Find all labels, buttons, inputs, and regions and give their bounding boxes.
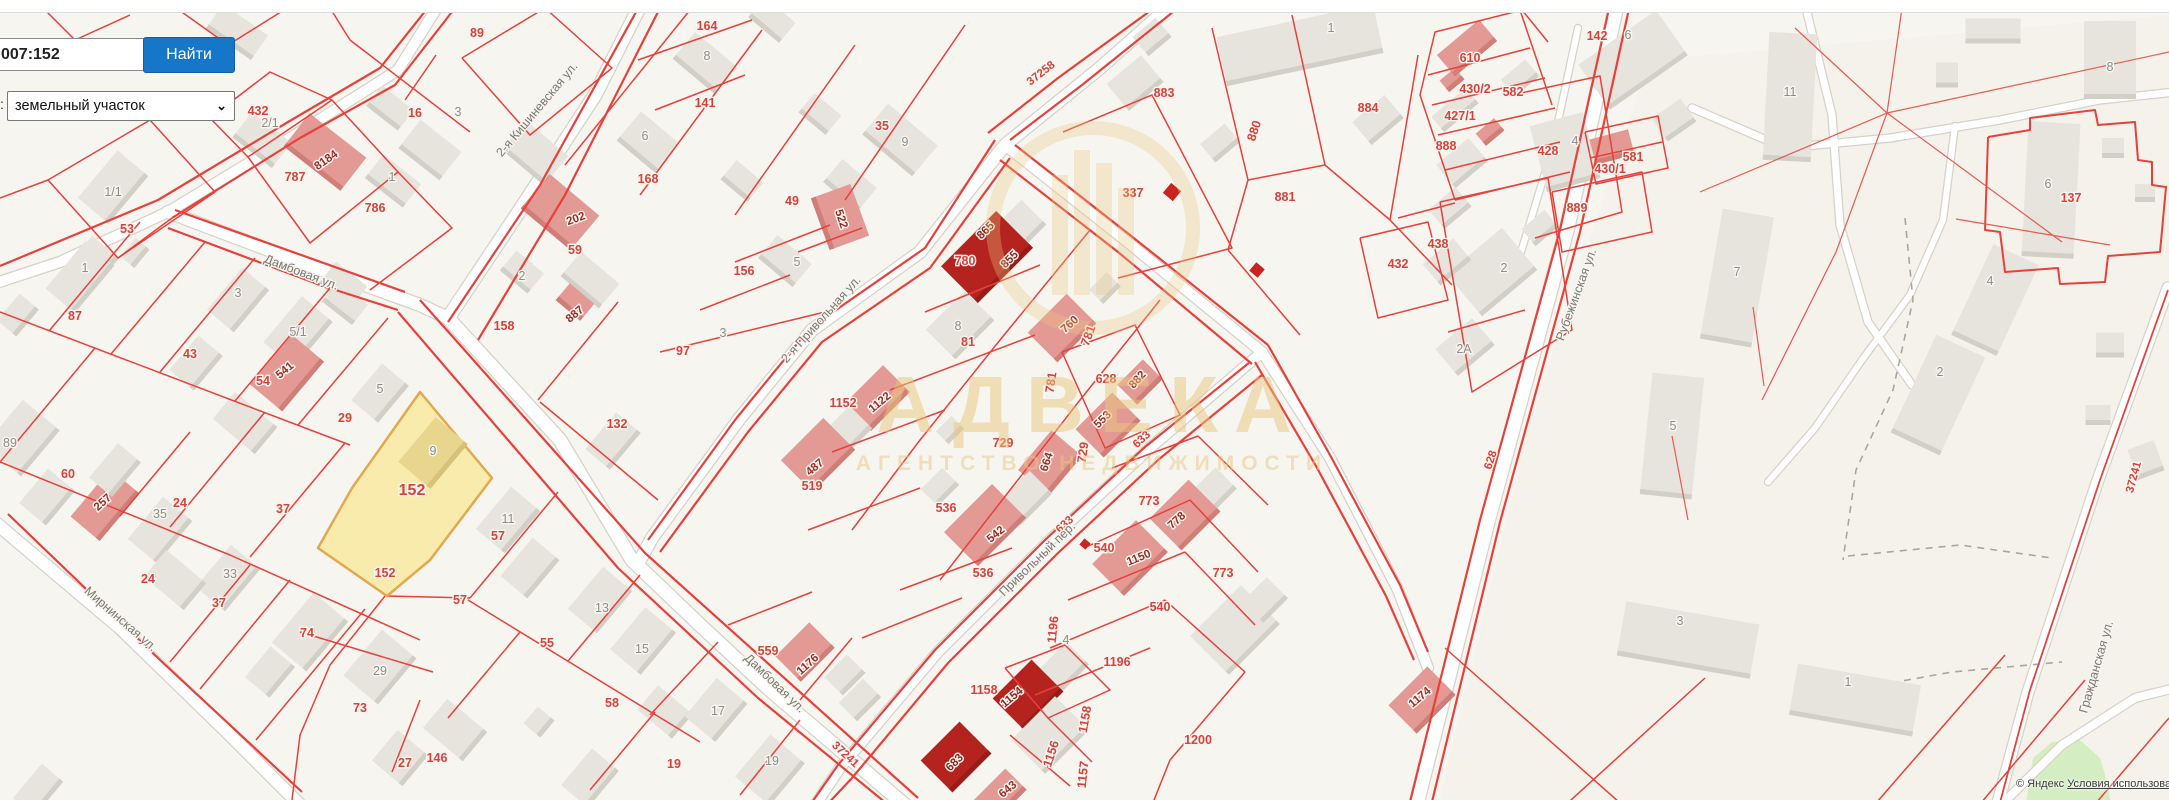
parcel-label: 540 [1094, 541, 1115, 555]
parcel-label: 430/2 [1459, 82, 1490, 96]
parcel-label: 773 [1139, 494, 1160, 508]
parcel-label: 6 [2045, 177, 2052, 191]
parcel-label: 11 [1784, 85, 1797, 99]
parcel-label: 19 [667, 757, 681, 771]
building [2135, 184, 2155, 202]
parcel-label: 540 [1150, 600, 1171, 614]
building [799, 93, 842, 135]
parcel-boundary [728, 592, 812, 625]
building [673, 32, 738, 94]
building [2086, 405, 2111, 425]
parcel-label: 3 [455, 105, 462, 119]
building [862, 104, 938, 176]
parcel-label: 164 [697, 19, 718, 33]
parcel-label: 59 [568, 243, 582, 257]
building [1966, 19, 2021, 44]
parcel-boundary [700, 275, 790, 310]
parcel-boundary [175, 210, 405, 292]
parcel-label: 29 [373, 664, 387, 678]
parcel-label: 1157 [1075, 760, 1092, 788]
parcel-label: 137 [2061, 191, 2082, 205]
watermark-title: АДВЕКА [876, 360, 1307, 449]
parcel-label: 1/1 [104, 185, 121, 199]
parcel-label: 2 [519, 269, 526, 283]
road-number-label: 37258 [1025, 59, 1058, 89]
parcel-label: 3 [720, 326, 727, 340]
parcel-label: 883 [1154, 86, 1175, 100]
parcel-label: 156 [734, 264, 755, 278]
building [1936, 63, 1958, 88]
parcel-label: 27 [398, 756, 412, 770]
parcel-label: 9 [902, 135, 909, 149]
parcel-label: 5/1 [289, 325, 306, 339]
map-attribution: © Яндекс Условия использования [2016, 778, 2169, 790]
parcel-boundary [862, 598, 962, 638]
parcel-label: 57 [453, 593, 467, 607]
parcel-label: 37 [276, 502, 290, 516]
parcel-label: 536 [936, 501, 957, 515]
cadastral-number-input[interactable] [0, 38, 146, 71]
building [1200, 124, 1240, 163]
parcel-label: 1158 [1076, 705, 1095, 734]
parcel-label: 168 [638, 172, 659, 186]
parcel-label: 60 [61, 467, 75, 481]
parcel-label: 1 [1845, 675, 1852, 689]
building [637, 685, 692, 738]
parcel-label: 519 [802, 479, 823, 493]
page-top-strip [0, 0, 2169, 13]
parcel-label: 2/1 [261, 116, 278, 130]
map-canvas[interactable]: 4322/178781847861163891/1531874335/15415… [0, 0, 2169, 800]
parcel-label: 132 [607, 417, 628, 431]
parcel-label: 13 [595, 601, 609, 615]
parcel-label: 430/1 [1594, 162, 1625, 176]
marked-object [1079, 538, 1090, 549]
parcel-label: 5 [377, 382, 384, 396]
parcel-label: 884 [1358, 101, 1379, 115]
parcel-label: 2А [1456, 342, 1472, 356]
parcel-label: 17 [711, 704, 725, 718]
parcel-label: 536 [973, 566, 994, 580]
building [561, 748, 619, 800]
parcel-label: 152 [399, 482, 426, 499]
parcel-label: 142 [1587, 29, 1608, 43]
parcel-label: 4 [1063, 633, 1070, 647]
parcel-boundary [900, 548, 1012, 590]
parcel-label: 43 [183, 347, 197, 361]
parcel-label: 37 [212, 596, 226, 610]
building [1217, 4, 1384, 86]
building [524, 707, 555, 738]
parcel-label: 889 [1567, 201, 1588, 215]
parcel-label: 9 [430, 444, 437, 458]
watermark-logo-bar [1052, 175, 1068, 295]
parcel-label: 81 [961, 335, 975, 349]
building [1437, 20, 1497, 77]
parcel-label: 1 [82, 261, 89, 275]
street-name-label: Мирнинская ул. [82, 584, 160, 654]
parcel-label: 1 [389, 170, 396, 184]
parcel-label: 35 [153, 507, 167, 521]
parcel-label: 8 [955, 319, 962, 333]
parcel-label: 35 [875, 119, 889, 133]
parcel-label: 1158 [970, 683, 997, 697]
parcel-label: 15 [635, 642, 649, 656]
building [213, 392, 278, 454]
parcel-label: 2 [1937, 365, 1944, 379]
parcel-boundary [1190, 500, 1258, 572]
parcel-label: 55 [540, 636, 554, 650]
parcel-label: 141 [695, 96, 716, 110]
parcel-label: 29 [338, 411, 352, 425]
watermark-logo-bar [1096, 163, 1112, 295]
parcel-label: 780 [955, 254, 976, 268]
parcel-label: 89 [3, 436, 17, 450]
parcel-label: 152 [375, 566, 396, 580]
chevron-down-icon: ⌄ [216, 98, 227, 114]
parcel-label: 1152 [829, 396, 856, 410]
parcel-label: 610 [1460, 51, 1481, 65]
parcel-label: 87 [68, 309, 82, 323]
parcel-boundary [1325, 165, 1390, 220]
parcel-label: 881 [1275, 190, 1296, 204]
watermark-subtitle: АГЕНТСТВО НЕДВИЖИМОСТИ [856, 452, 1328, 475]
parcel-label: 3 [235, 286, 242, 300]
object-type-select[interactable]: земельный участок ⌄ [7, 91, 235, 121]
parcel-label: 582 [1503, 85, 1524, 99]
parcel-label: 888 [1436, 139, 1457, 153]
watermark-logo-bar [1074, 150, 1090, 295]
building [721, 160, 764, 202]
parcel-boundary [808, 488, 920, 530]
parcel-label: 880 [1244, 119, 1264, 143]
parcel-label: 2 [1501, 261, 1508, 275]
parcel-label: 1196 [1045, 615, 1062, 643]
parcel-label: 24 [173, 496, 187, 510]
parcel-label: 33 [223, 567, 237, 581]
parcel-label: 3 [1677, 614, 1684, 628]
parcel-label: 559 [758, 644, 779, 658]
parcel-label: 786 [365, 201, 386, 215]
parcel-label: 53 [120, 222, 134, 236]
parcel-label: 73 [353, 701, 367, 715]
parcel-label: 4 [1572, 134, 1579, 148]
parcel-label: 432 [1388, 257, 1409, 271]
parcel-boundary [0, 180, 48, 198]
terms-link[interactable]: Условия использования [2067, 778, 2169, 790]
cadastral-map-app: 4322/178781847861163891/1531874335/15415… [0, 0, 2169, 800]
parcel-label: 787 [285, 170, 306, 184]
parcel-label: 54 [256, 374, 270, 388]
building [1132, 18, 1171, 56]
watermark-logo-bar [1118, 188, 1134, 295]
parcel-label: 89 [470, 26, 484, 40]
marked-object [1249, 262, 1264, 277]
building [2102, 138, 2124, 158]
yandex-copyright: © Яндекс [2016, 778, 2064, 790]
parcel-label: 1 [1328, 21, 1335, 35]
parcel-label: 49 [785, 194, 799, 208]
parcel-label: 6 [642, 129, 649, 143]
parcel-label: 58 [605, 696, 619, 710]
parcel-label: 1200 [1184, 733, 1212, 747]
parcel-label: 5 [1670, 419, 1677, 433]
parcel-label: 7 [1734, 265, 1741, 279]
parcel-label: 581 [1623, 150, 1644, 164]
building [169, 335, 222, 390]
parcel-label: 5 [794, 255, 801, 269]
object-type-value: земельный участок [15, 98, 145, 114]
building [398, 120, 461, 180]
parcel-label: 8 [704, 49, 711, 63]
parcel-label: 438 [1428, 237, 1449, 251]
parcel-label: 6 [1625, 28, 1632, 42]
parcel-label: 19 [765, 754, 779, 768]
parcel-boundary [590, 712, 655, 790]
parcel-label: 97 [676, 344, 690, 358]
parcel-label: 16 [408, 106, 422, 120]
parcel-label: 773 [1213, 566, 1234, 580]
parcel-label: 57 [491, 529, 505, 543]
find-button[interactable]: Найти [143, 37, 235, 73]
road[interactable] [0, 518, 300, 800]
parcel-label: 11 [502, 512, 515, 526]
parcel-label: 146 [427, 751, 448, 765]
parcel-label: 74 [300, 626, 314, 640]
parcel-label: 158 [494, 319, 515, 333]
building [610, 607, 676, 675]
building [2096, 333, 2124, 358]
parcel-label: 24 [141, 572, 155, 586]
object-type-label: : [0, 96, 4, 112]
parcel-label: 8 [2107, 60, 2114, 74]
building [13, 764, 63, 800]
parcel-label: 428 [1538, 144, 1559, 158]
parcel-boundary [845, 25, 965, 200]
parcel-boundary [448, 632, 520, 718]
parcel-label: 1196 [1103, 655, 1130, 669]
parcel-label: 427/1 [1444, 109, 1475, 123]
parcel-boundary [1520, 10, 1552, 105]
street-name-label: 2-я Привольная ул. [778, 273, 863, 366]
parcel-label: 4 [1987, 274, 1994, 288]
